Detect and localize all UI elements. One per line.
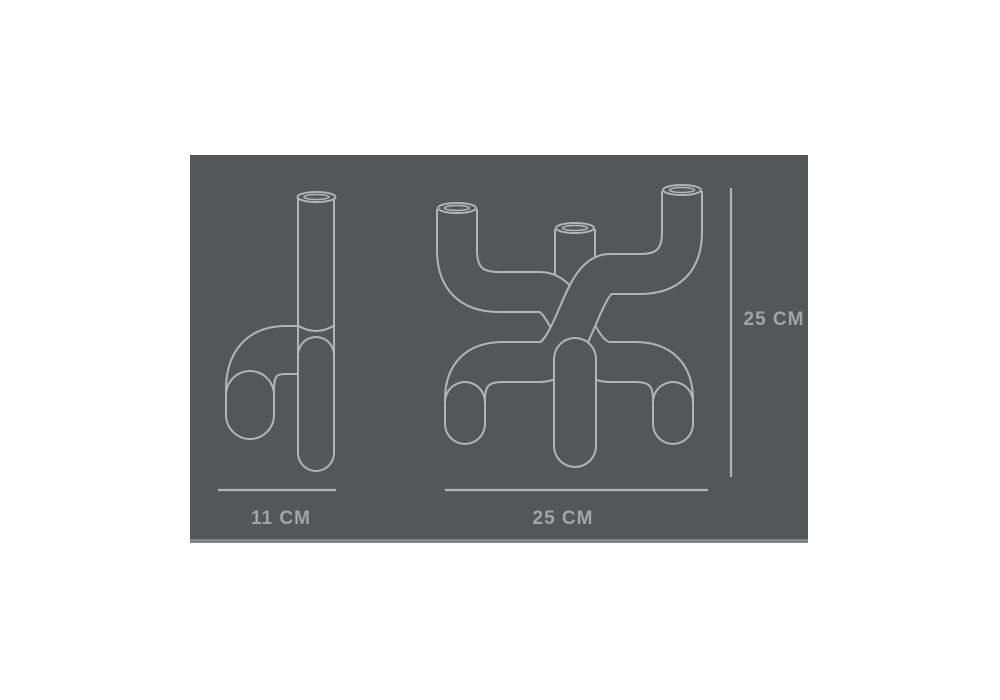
front-center-candle-cup-rim (556, 223, 594, 233)
product-dimension-panel: 11 CM 25 CM 25 CM (190, 155, 808, 543)
side-candle-tube (297, 198, 335, 355)
front-width-label: 25 CM (503, 509, 623, 529)
front-view-drawing (438, 185, 701, 446)
side-view-drawing (250, 192, 336, 453)
front-left-candle-cup-rim (438, 203, 476, 213)
side-candle-cup-rim (298, 192, 336, 202)
candelabra-dimension-drawing (190, 155, 808, 543)
front-right-candle-cup-rim (663, 185, 701, 195)
side-width-label: 11 CM (221, 509, 341, 529)
panel-bottom-edge (190, 539, 808, 543)
height-label: 25 CM (724, 310, 824, 330)
